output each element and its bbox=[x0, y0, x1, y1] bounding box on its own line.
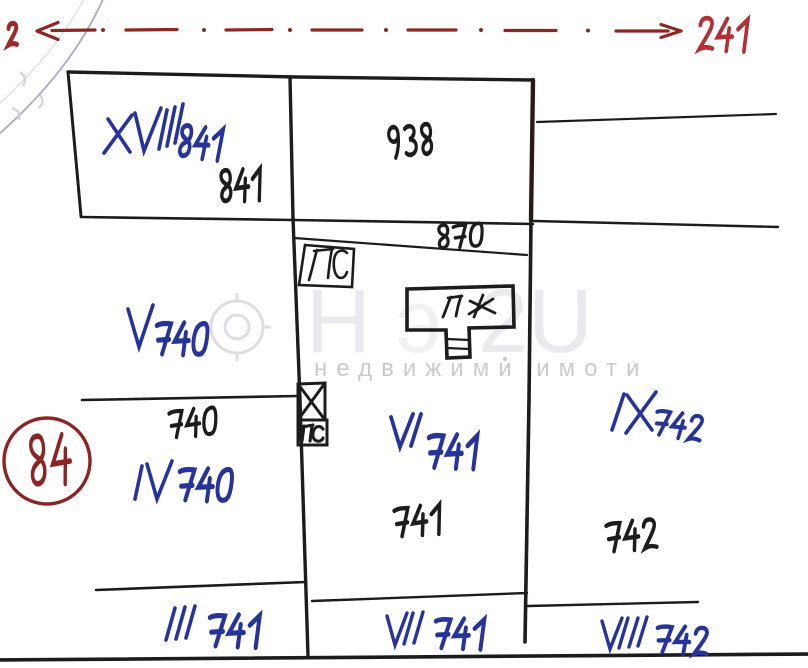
svg-text:недвижими имоти: недвижими имоти bbox=[314, 355, 648, 382]
